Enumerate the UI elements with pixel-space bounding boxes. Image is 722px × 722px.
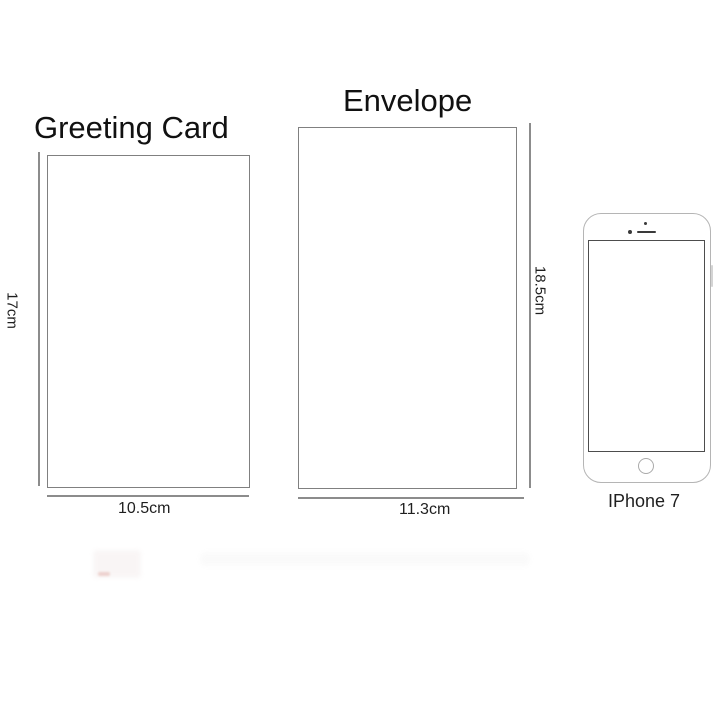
greeting-card-width-label: 10.5cm [118, 501, 170, 517]
iphone-camera-dot-icon [644, 222, 647, 225]
envelope-title: Envelope [343, 85, 472, 116]
envelope-height-label: 18.5cm [533, 263, 548, 319]
iphone-side-button-icon [711, 265, 714, 287]
greeting-card-height-dimension-line [38, 152, 40, 486]
iphone-sensor-dot-icon [628, 230, 632, 234]
watermark-remnant-dot [98, 572, 110, 576]
envelope-width-dimension-line [298, 497, 524, 499]
greeting-card-title: Greeting Card [34, 112, 229, 143]
greeting-card-width-dimension-line [47, 495, 249, 497]
envelope-height-dimension-line [529, 123, 531, 488]
size-comparison-diagram: Greeting Card 17cm 10.5cm Envelope 18.5c… [0, 0, 722, 722]
watermark-remnant-streak [200, 552, 530, 566]
iphone-speaker-icon [637, 231, 656, 234]
iphone-label: IPhone 7 [608, 492, 680, 510]
iphone-home-button-icon [638, 458, 654, 474]
iphone-screen [588, 240, 705, 452]
iphone-illustration [583, 213, 711, 483]
greeting-card-rectangle [47, 155, 250, 488]
envelope-width-label: 11.3cm [399, 502, 450, 518]
watermark-remnant [93, 550, 141, 578]
greeting-card-height-label: 17cm [5, 289, 20, 333]
envelope-rectangle [298, 127, 517, 489]
